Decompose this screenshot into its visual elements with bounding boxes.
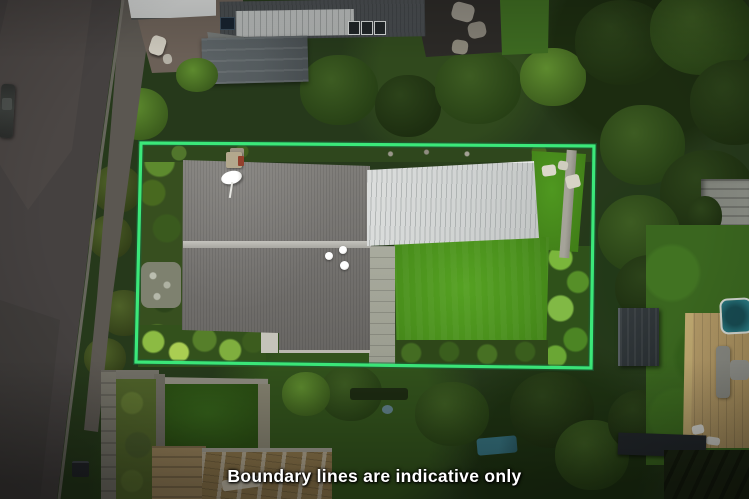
caption-text: Boundary lines are indicative only — [0, 466, 749, 487]
right-shed-roof — [618, 308, 659, 366]
side-path — [369, 246, 395, 364]
roof-vent — [340, 261, 349, 270]
garage-roof-white — [367, 161, 539, 246]
pebble-patch — [141, 262, 181, 308]
hedge-planter — [350, 388, 408, 400]
roof-vent — [339, 246, 347, 254]
pond — [382, 405, 393, 414]
spa-pool — [719, 297, 749, 335]
notch-deck — [261, 332, 278, 353]
aerial-photo: Boundary lines are indicative only — [0, 0, 749, 499]
neighbor-path-vertical — [258, 384, 270, 450]
gutter-highlight — [279, 350, 370, 353]
outdoor-sofa-seat — [730, 360, 749, 380]
hedge-row — [396, 340, 548, 366]
solar-panel — [220, 17, 235, 30]
tarp — [476, 435, 517, 455]
skylight — [361, 21, 373, 35]
neighbor-lawn — [164, 384, 262, 448]
main-house-roof — [182, 160, 370, 353]
stone-block — [557, 160, 568, 171]
rock — [451, 39, 469, 55]
neighbor-roof-light-band — [236, 9, 354, 37]
palm-garden — [543, 246, 593, 366]
outdoor-sofa — [716, 346, 730, 398]
top-garden-band — [143, 144, 593, 162]
chimney-flue — [238, 156, 244, 166]
bush — [176, 58, 218, 92]
skylight — [348, 21, 360, 35]
stone-block — [541, 164, 556, 177]
car-windshield — [2, 98, 12, 110]
skylight — [374, 21, 386, 35]
roof-vent — [325, 252, 333, 260]
